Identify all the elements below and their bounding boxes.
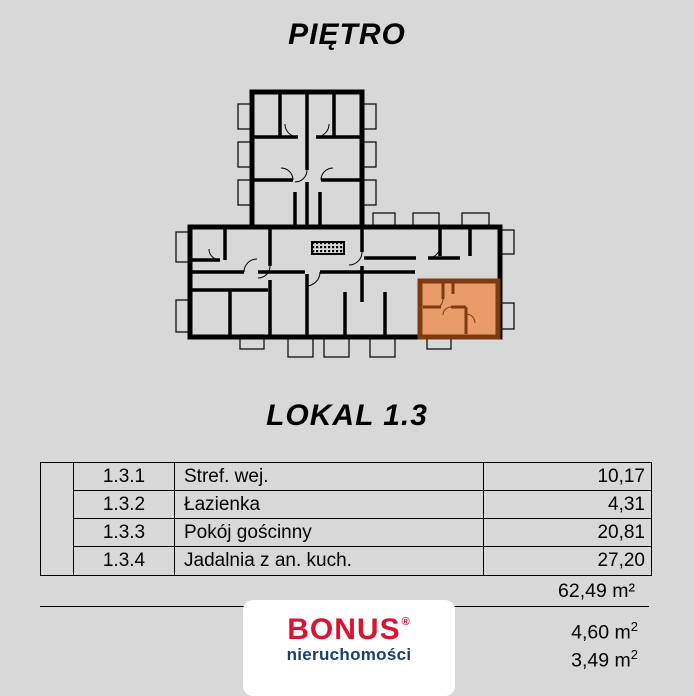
room-area: 27,20 (484, 547, 651, 575)
room-area: 20,81 (484, 519, 651, 547)
room-number: 1.3.2 (74, 491, 175, 519)
bonus-logo-subtitle: nieruchomości (243, 645, 455, 665)
room-name: Łazienka (175, 491, 484, 519)
staircase (312, 242, 344, 254)
highlighted-unit-outline (420, 281, 498, 337)
floor-title: PIĘTRO (0, 18, 694, 52)
room-number: 1.3.3 (74, 519, 175, 547)
table-corner-cell (41, 463, 74, 575)
room-number: 1.3.4 (74, 547, 175, 575)
total-area: 62,49 m² (558, 580, 635, 603)
bonus-logo-brand: BONUS® (243, 615, 455, 645)
unit-title: LOKAL 1.3 (0, 399, 694, 433)
extra-area-line: 4,60 m2 (571, 616, 638, 644)
room-name: Stref. wej. (175, 463, 484, 491)
extra-area-line: 3,49 m2 (571, 644, 638, 672)
floor-plan (160, 70, 550, 370)
registered-mark: ® (402, 616, 411, 628)
room-name: Pokój gościnny (175, 519, 484, 547)
highlighted-unit-lokal-1-3 (420, 281, 498, 337)
room-area: 4,31 (484, 491, 651, 519)
extra-areas: 4,60 m2 3,49 m2 (571, 616, 638, 671)
rooms-table: 1.3.1 Stref. wej. 10,17 1.3.2 Łazienka 4… (40, 462, 652, 576)
room-name: Jadalnia z an. kuch. (175, 547, 484, 575)
room-number: 1.3.1 (74, 463, 175, 491)
room-area: 10,17 (484, 463, 651, 491)
bonus-logo: BONUS® nieruchomości (243, 600, 455, 696)
